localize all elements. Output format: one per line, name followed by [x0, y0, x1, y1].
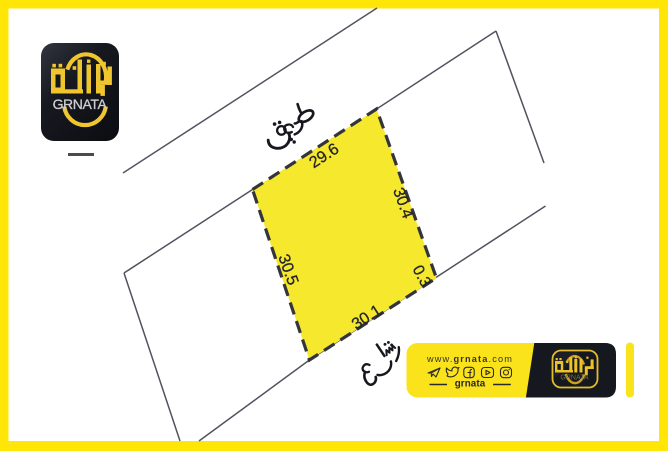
svg-text:GRNATA: GRNATA: [53, 96, 108, 112]
svg-text:www.grnata.com: www.grnata.com: [426, 354, 513, 364]
svg-text:grnata: grnata: [455, 379, 486, 390]
svg-text:GRNATA: GRNATA: [560, 375, 588, 382]
